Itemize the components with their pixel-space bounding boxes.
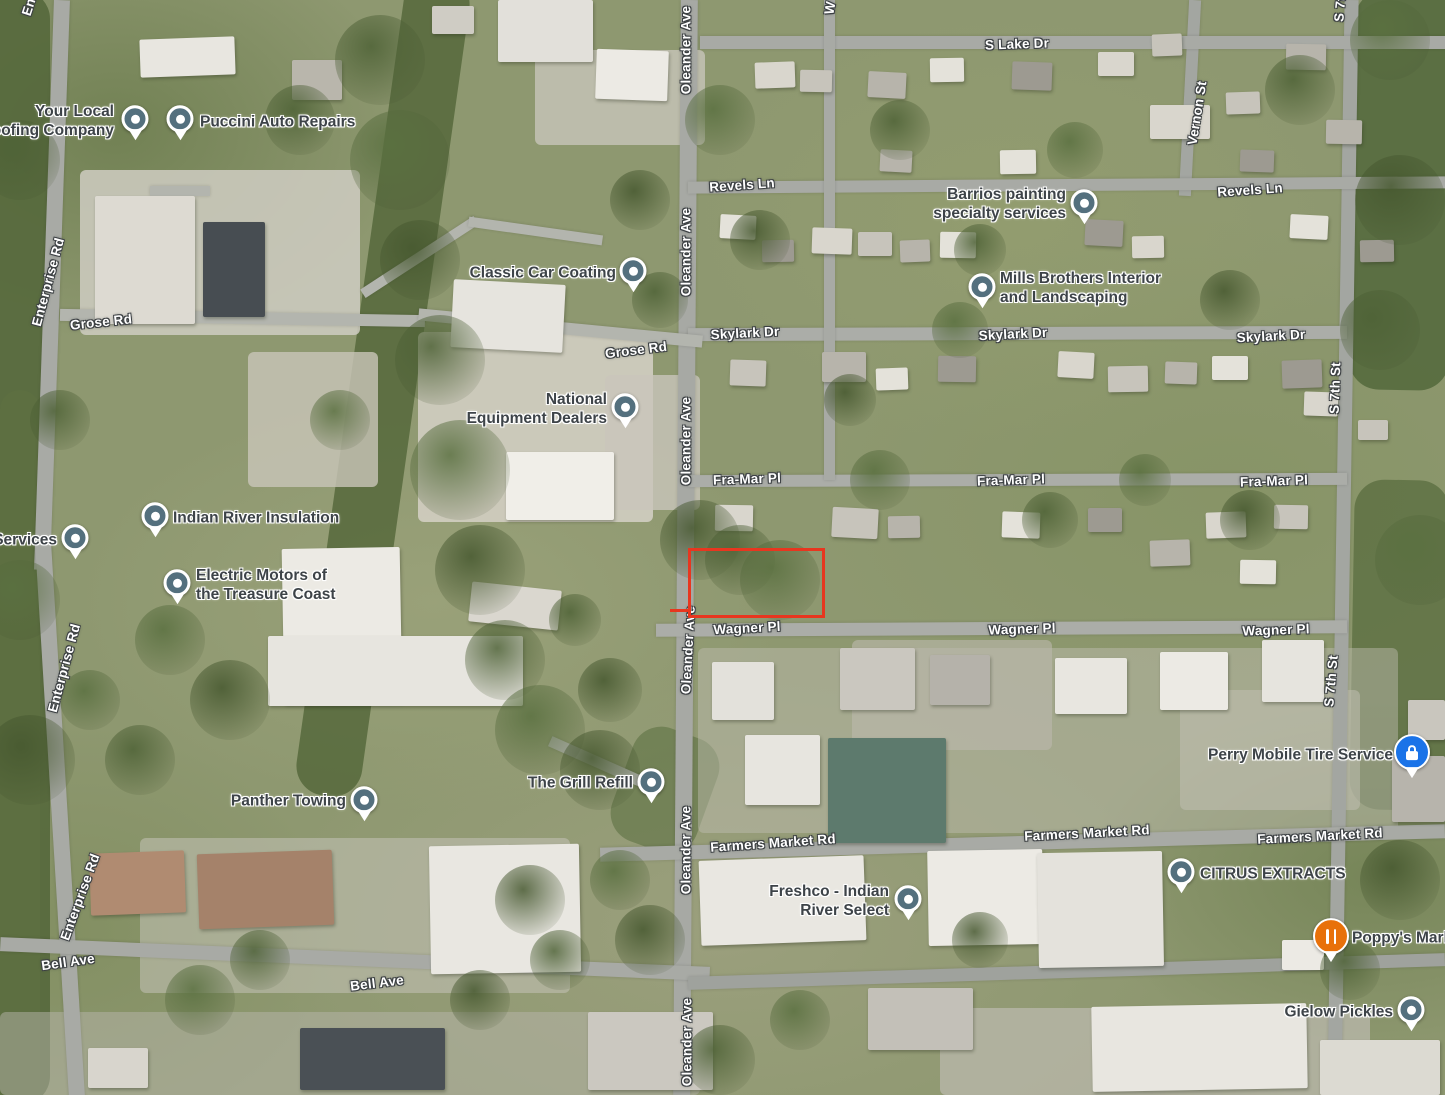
business-label-line: National — [467, 390, 607, 409]
pin-circle — [895, 885, 922, 912]
tree-cluster — [1022, 492, 1078, 548]
building — [89, 850, 186, 915]
place-pin-icon[interactable] — [167, 105, 194, 142]
business-label-line: g Services — [0, 531, 57, 550]
tree-cluster — [952, 912, 1008, 968]
street-label: Oleander Ave — [679, 806, 694, 894]
tree-cluster — [954, 224, 1006, 276]
tree-cluster — [615, 905, 685, 975]
tree-cluster — [310, 390, 370, 450]
place-pin-icon[interactable] — [1398, 996, 1425, 1033]
tree-cluster — [495, 865, 565, 935]
house — [876, 367, 909, 390]
pin-tail — [975, 297, 989, 308]
business-label-line: Equipment Dealers — [467, 409, 607, 428]
tree-cluster — [1119, 454, 1171, 506]
house — [1012, 61, 1053, 90]
business-label-line: specialty services — [933, 204, 1066, 223]
business-label-line: Classic Car Coating — [470, 264, 616, 283]
tree-cluster — [105, 725, 175, 795]
place-pin-icon[interactable] — [142, 502, 169, 539]
place-pin-icon[interactable] — [638, 768, 665, 805]
lock-pin-icon[interactable] — [1394, 734, 1430, 781]
business-label-line: the Treasure Coast — [196, 585, 336, 604]
street-label: S 7th St — [1327, 362, 1344, 414]
place-pin-icon[interactable] — [620, 257, 647, 294]
business-label-national-equipment-dealers[interactable]: NationalEquipment Dealers — [467, 390, 607, 428]
tree-cluster — [1220, 490, 1280, 550]
building — [88, 1048, 148, 1088]
business-label-line: Indian River Insulation — [173, 509, 339, 528]
pin-tail — [170, 593, 184, 604]
business-label-mills-brothers-interior-and-landscaping[interactable]: Mills Brothers Interiorand Landscaping — [1000, 269, 1161, 307]
building — [300, 1028, 445, 1090]
street-label: Fra-Mar Pl — [1240, 472, 1309, 489]
fork-knife-glyph — [1324, 929, 1338, 944]
house — [900, 239, 931, 262]
house — [1289, 214, 1328, 240]
building — [712, 662, 774, 720]
place-pin-icon[interactable] — [164, 569, 191, 606]
business-label-citrus-extracts[interactable]: CITRUS EXTRACTS — [1200, 865, 1346, 884]
tree-cluster — [1350, 0, 1430, 80]
street-label: Oleander Ave — [679, 6, 694, 94]
building — [203, 222, 265, 317]
place-pin-icon[interactable] — [122, 105, 149, 142]
street-label: Oleander Ave — [678, 605, 698, 694]
tree-cluster — [685, 1025, 755, 1095]
building — [1160, 652, 1228, 710]
house — [1165, 361, 1198, 384]
lock-glyph — [1406, 751, 1418, 760]
parcel-outline — [688, 548, 825, 618]
pin-circle — [164, 569, 191, 596]
pin-circle — [638, 768, 665, 795]
house — [1132, 236, 1164, 259]
tree-cluster — [1047, 122, 1103, 178]
pin-tail — [618, 417, 632, 428]
tree-cluster — [770, 990, 830, 1050]
business-label-puccini-auto-repairs[interactable]: Puccini Auto Repairs — [200, 113, 355, 132]
road — [468, 217, 603, 246]
house — [938, 356, 976, 383]
building — [197, 850, 335, 930]
tree-cluster — [870, 100, 930, 160]
tree-cluster — [1200, 270, 1260, 330]
house — [1240, 560, 1276, 585]
business-label-line: Panther Towing — [231, 792, 346, 811]
house — [930, 58, 964, 83]
pin-circle — [1071, 189, 1098, 216]
house — [755, 61, 796, 88]
business-label-perry-mobile-tire-service[interactable]: Perry Mobile Tire Service — [1208, 746, 1393, 765]
pin-tail — [901, 909, 915, 920]
house — [1212, 356, 1248, 380]
pin-tail — [1404, 1020, 1418, 1031]
pin-circle — [612, 393, 639, 420]
street-label: Wagner Pl — [1242, 621, 1310, 638]
pin-circle — [142, 502, 169, 529]
street-label: Fra-Mar Pl — [713, 470, 782, 487]
house — [858, 232, 892, 256]
business-label-line: Barrios painting — [933, 185, 1066, 204]
pin-tail — [173, 129, 187, 140]
tree-cluster — [850, 450, 910, 510]
place-pin-icon[interactable] — [612, 393, 639, 430]
pin-tail — [357, 810, 371, 821]
pin-tail — [1405, 767, 1419, 778]
tree-cluster — [1265, 55, 1335, 125]
tree-cluster — [335, 15, 425, 105]
house — [1326, 120, 1362, 145]
business-label-classic-car-coating[interactable]: Classic Car Coating — [470, 264, 616, 283]
house — [888, 516, 920, 539]
pin-tail — [68, 548, 82, 559]
tree-cluster — [410, 420, 510, 520]
tree-cluster — [530, 930, 590, 990]
tree-cluster — [549, 594, 601, 646]
building — [868, 988, 973, 1050]
business-label-line: Freshco - Indian — [769, 882, 889, 901]
pin-circle — [620, 257, 647, 284]
place-pin-icon[interactable] — [1071, 189, 1098, 226]
pin-circle — [1168, 858, 1195, 885]
house — [1098, 52, 1134, 76]
tree-cluster — [590, 850, 650, 910]
business-label-freshco-indian-river-select[interactable]: Freshco - IndianRiver Select — [769, 882, 889, 920]
house — [1108, 366, 1148, 393]
house — [730, 359, 767, 386]
business-label-line: Gielow Pickles — [1284, 1003, 1393, 1022]
building — [139, 36, 235, 77]
street-label: Revels Ln — [1217, 180, 1283, 200]
place-pin-icon[interactable] — [62, 524, 89, 561]
building — [1055, 658, 1127, 714]
business-label-line: and Landscaping — [1000, 288, 1161, 307]
building — [828, 738, 946, 843]
pin-tail — [644, 792, 658, 803]
street-label: Wagner Pl — [988, 620, 1056, 637]
pin-tail — [128, 129, 142, 140]
building — [595, 49, 669, 101]
business-label-line: Roofing Company — [0, 121, 114, 140]
restaurant-pin-icon[interactable] — [1313, 918, 1349, 965]
place-pin-icon[interactable] — [1168, 858, 1195, 895]
tree-cluster — [1355, 155, 1445, 245]
tree-cluster — [350, 110, 450, 210]
building — [498, 0, 593, 62]
tree-cluster — [165, 965, 235, 1035]
tree-cluster — [824, 374, 876, 426]
satellite-map[interactable]: Enterprise RdEnterprise RdGrose RdEnterp… — [0, 0, 1445, 1095]
house — [1226, 91, 1261, 114]
building — [840, 648, 915, 710]
tree-cluster — [1360, 840, 1440, 920]
business-label-line: River Select — [769, 901, 889, 920]
tree-cluster — [578, 658, 642, 722]
business-label-line: Poppy's Market — [1352, 929, 1445, 948]
pin-circle — [122, 105, 149, 132]
house — [867, 71, 906, 99]
house — [1000, 150, 1036, 175]
business-label-line: The Grill Refill — [528, 774, 633, 793]
pin-tail — [626, 281, 640, 292]
pin-circle — [351, 786, 378, 813]
pin-tail — [1324, 951, 1338, 962]
pin-circle — [1398, 996, 1425, 1023]
business-label-barrios-painting-specialty-services[interactable]: Barrios paintingspecialty services — [933, 185, 1066, 223]
place-pin-icon[interactable] — [895, 885, 922, 922]
business-label-line: Puccini Auto Repairs — [200, 113, 355, 132]
tree-cluster — [190, 660, 270, 740]
tree-cluster — [30, 390, 90, 450]
pin-circle — [167, 105, 194, 132]
building — [432, 6, 474, 34]
road — [700, 36, 1445, 49]
building — [930, 655, 990, 705]
house — [831, 507, 879, 539]
house — [1240, 149, 1275, 172]
building — [1091, 1003, 1307, 1092]
business-label-poppys-market[interactable]: Poppy's Market — [1352, 929, 1445, 948]
house — [1088, 508, 1122, 532]
business-label-line: Electric Motors of — [196, 566, 336, 585]
tree-cluster — [1340, 290, 1420, 370]
pin-circle — [1394, 734, 1430, 770]
tree-cluster — [450, 970, 510, 1030]
business-label-line: CITRUS EXTRACTS — [1200, 865, 1346, 884]
tree-cluster — [685, 85, 755, 155]
pin-circle — [62, 524, 89, 551]
house — [1152, 33, 1183, 56]
pin-tail — [1077, 213, 1091, 224]
building — [506, 452, 614, 520]
pin-tail — [148, 526, 162, 537]
street-label: Oleander Ave — [679, 397, 694, 485]
house — [800, 70, 832, 93]
street-label: Oleander Ave — [680, 998, 695, 1086]
tree-cluster — [380, 220, 460, 300]
pin-tail — [1174, 882, 1188, 893]
street-label: Fra-Mar Pl — [977, 471, 1046, 488]
tree-cluster — [135, 605, 205, 675]
tree-cluster — [230, 930, 290, 990]
house — [1057, 351, 1094, 379]
road — [150, 186, 210, 196]
street-label: Oleander Ave — [679, 208, 694, 296]
house — [1358, 420, 1388, 440]
tree-cluster — [610, 170, 670, 230]
street-label: S Lake Dr — [985, 35, 1050, 52]
business-label-the-grill-refill[interactable]: The Grill Refill — [528, 774, 633, 793]
parcel-outline-tail — [670, 609, 690, 612]
tree-cluster — [60, 670, 120, 730]
tree-cluster — [730, 210, 790, 270]
house — [1150, 539, 1191, 566]
business-label-line: Perry Mobile Tire Service — [1208, 746, 1393, 765]
business-label-line: Mills Brothers Interior — [1000, 269, 1161, 288]
business-label-services-partial[interactable]: g Services — [0, 531, 57, 550]
building — [1037, 851, 1164, 968]
business-label-your-local-roofing-company[interactable]: Your LocalRoofing Company — [0, 102, 114, 140]
road — [688, 176, 1445, 193]
business-label-indian-river-insulation[interactable]: Indian River Insulation — [173, 509, 339, 528]
building — [745, 735, 820, 805]
business-label-line: Your Local — [0, 102, 114, 121]
business-label-gielow-pickles[interactable]: Gielow Pickles — [1284, 1003, 1393, 1022]
building — [1262, 640, 1324, 702]
place-pin-icon[interactable] — [969, 273, 996, 310]
building — [95, 196, 195, 324]
pin-circle — [1313, 918, 1349, 954]
house — [812, 227, 853, 254]
tree-cluster — [560, 730, 640, 810]
street-label: Skylark Dr — [1236, 327, 1305, 346]
business-label-panther-towing[interactable]: Panther Towing — [231, 792, 346, 811]
street-label: W — [821, 0, 838, 15]
pin-circle — [969, 273, 996, 300]
street-label: Skylark Dr — [978, 325, 1047, 344]
place-pin-icon[interactable] — [351, 786, 378, 823]
business-label-electric-motors-of-the-treasure-coast[interactable]: Electric Motors ofthe Treasure Coast — [196, 566, 336, 604]
building — [1320, 1040, 1440, 1095]
tree-cluster — [435, 525, 525, 615]
house — [1282, 359, 1323, 388]
